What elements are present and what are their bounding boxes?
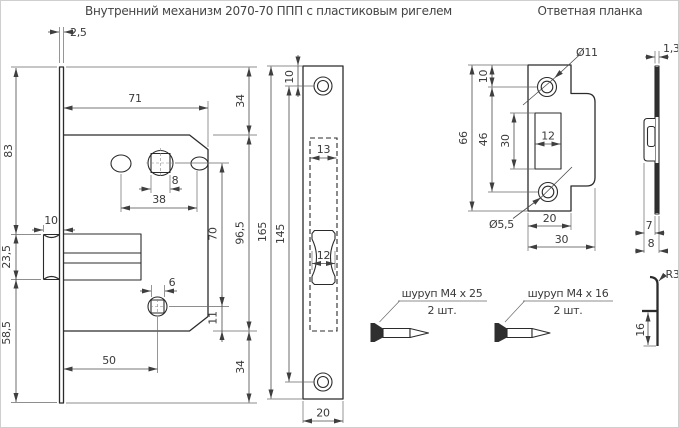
dim-strike-small-hole: Ø5,5 (489, 218, 514, 231)
screw2-head (495, 323, 499, 342)
hidden-cutout (310, 138, 337, 331)
dim-hole-spacing: 38 (152, 193, 166, 206)
dim-plate-hole-spacing: 145 (274, 224, 287, 244)
strike-hole-top-inner (541, 81, 553, 93)
dim-plate-height: 165 (256, 222, 269, 242)
dim-strike-cutout-height: 30 (499, 134, 512, 148)
faceplate-front-view: 10 165 145 13 12 20 (256, 55, 343, 423)
screw1-head (371, 323, 375, 342)
strike-plate-side-view: 1,3 7 8 R3 16 (634, 42, 679, 346)
latch-bolt (44, 235, 60, 280)
strike-side-plate-fill-bottom (655, 163, 658, 213)
dim-top-margin: 34 (234, 94, 247, 108)
dim-latch-depth: 10 (44, 214, 58, 227)
screw2-label: шуруп М4 х 16 (528, 287, 609, 300)
strike-side-plate-fill-top (655, 67, 658, 117)
lock-body-outline (64, 135, 209, 331)
dim-edge-to-latch: 83 (2, 144, 15, 158)
dim-strike-height: 66 (457, 131, 470, 145)
dim-strike-plate-width: 20 (543, 212, 557, 225)
key-centerlines (150, 299, 165, 314)
dim-bottom-margin: 34 (234, 360, 247, 374)
dim-key-size: 6 (169, 276, 176, 289)
latch-slide-block (64, 234, 142, 280)
spindle-centerlines (146, 148, 175, 178)
dim-strike-full-width: 30 (555, 233, 569, 246)
dim-bend-radius: R3 (666, 268, 679, 281)
dim-spindle-to-key: 70 (207, 227, 220, 241)
screw2-shaft (507, 329, 532, 338)
lock-drawing-svg: Внутренний механизм 2070-70 ППП с пласти… (1, 1, 679, 428)
screw-hole-bottom (314, 373, 332, 391)
dim-bolt-width: 12 (317, 249, 330, 262)
screw-m4x25: шуруп М4 х 25 2 шт. (371, 287, 488, 342)
technical-drawing-sheet: Внутренний механизм 2070-70 ППП с пласти… (0, 0, 679, 428)
dim-strike-thickness: 1,3 (663, 42, 679, 55)
screw1-head-cone (375, 323, 384, 342)
lock-mechanism-side-view: 2,5 83 23,5 58,5 10 71 34 8 38 70 96,5 6… (1, 26, 257, 403)
fixing-slot-left (111, 155, 131, 172)
screw2-qty: 2 шт. (554, 304, 583, 317)
dim-plate-edge-to-hole: 10 (283, 70, 296, 84)
dim-strike-edge-to-hole: 10 (477, 70, 490, 84)
dim-cutout-width: 13 (317, 143, 331, 156)
strike-hole-bottom (539, 183, 558, 202)
dim-plate-width: 20 (316, 407, 330, 420)
screw-hole-bottom-inner (318, 377, 329, 388)
dim-strike-hole-diameter: Ø11 (576, 46, 598, 59)
screw-m4x16: шуруп М4 х 16 2 шт. (495, 287, 614, 342)
dim-latch-height: 23,5 (1, 245, 13, 269)
strike-plate-title: Ответная планка (538, 4, 643, 18)
screw1-qty: 2 шт. (428, 304, 457, 317)
strike-hole-top (538, 78, 557, 97)
screw-hole-top (314, 77, 332, 95)
dim-strike-cutout-width: 12 (541, 130, 554, 143)
faceplate-edge (60, 67, 64, 403)
dim-faceplate-thickness: 2,5 (70, 26, 87, 39)
strike-plate-front-view: Ø11 66 10 46 30 12 Ø5,5 20 30 (457, 46, 598, 251)
dim-key-to-body-edge: 11 (207, 311, 220, 324)
dim-key-offset: 50 (102, 354, 116, 367)
screw1-tip (410, 329, 429, 338)
strike-hole-bottom-inner (542, 186, 554, 198)
dim-spindle-size: 8 (172, 174, 179, 187)
dim-latch-to-edge: 58,5 (1, 321, 13, 345)
dim-strike-full-depth: 8 (648, 237, 655, 250)
dim-body-width: 71 (128, 92, 141, 105)
screw2-tip (532, 329, 550, 338)
dim-strike-hole-spacing: 46 (477, 133, 490, 147)
screw1-label: шуруп М4 х 25 (402, 287, 483, 300)
screw1-shaft (383, 329, 410, 338)
strike-side-tab (644, 119, 655, 162)
fixing-slot-right (191, 157, 208, 170)
dim-body-height: 96,5 (234, 221, 247, 245)
screw2-head-cone (499, 323, 508, 342)
dim-strike-depth: 7 (646, 219, 653, 232)
screw-hole-top-inner (318, 81, 329, 92)
mechanism-title: Внутренний механизм 2070-70 ППП с пласти… (85, 4, 452, 18)
dim-tongue-height: 16 (634, 323, 647, 337)
